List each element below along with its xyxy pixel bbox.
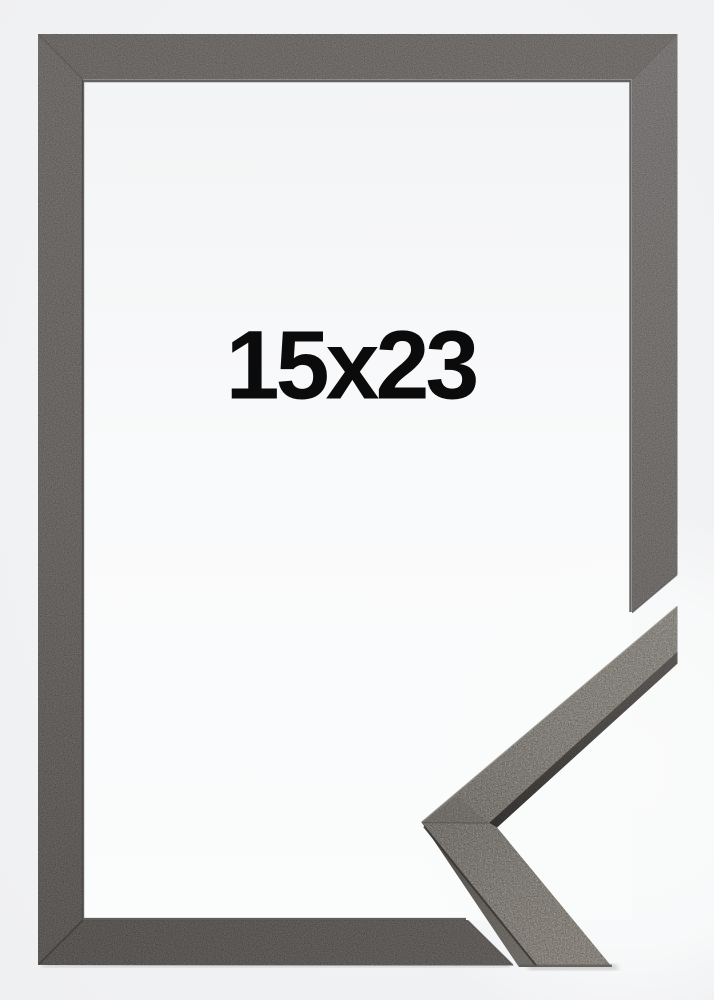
svg-text:15x23: 15x23 <box>226 311 477 420</box>
